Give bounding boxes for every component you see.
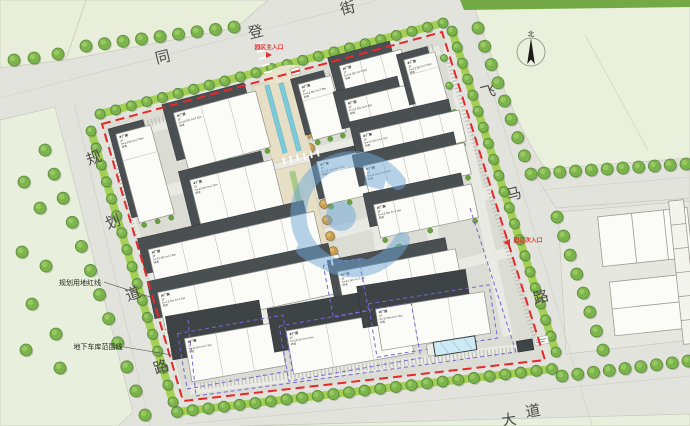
- tree-highlight: [268, 65, 273, 70]
- tree-highlight: [88, 128, 93, 133]
- tree-highlight: [59, 194, 64, 199]
- tree-highlight: [345, 388, 350, 393]
- tree-highlight: [377, 36, 382, 41]
- tree-highlight: [637, 362, 642, 367]
- tree-highlight: [634, 163, 639, 168]
- tree-highlight: [652, 361, 657, 366]
- tree-highlight: [553, 213, 558, 218]
- tree-highlight: [174, 30, 179, 35]
- tree-highlight: [329, 390, 334, 395]
- tree-highlight: [362, 40, 367, 45]
- tree-highlight: [100, 39, 105, 44]
- tree-highlight: [132, 387, 137, 392]
- site-plan-page: #厂房2Fh=12.0m h=7.0m研发#厂房2Fh=12.0m h=7.0m…: [0, 0, 690, 426]
- tree-highlight: [527, 268, 532, 273]
- tree-highlight: [514, 133, 519, 138]
- tree-highlight: [442, 56, 445, 59]
- tree-highlight: [137, 35, 142, 40]
- tree-highlight: [361, 387, 366, 392]
- tree-highlight: [28, 300, 33, 305]
- tree-highlight: [520, 152, 525, 157]
- tree-highlight: [485, 140, 490, 145]
- tree-highlight: [486, 372, 491, 377]
- tree-highlight: [118, 229, 123, 234]
- tree-highlight: [480, 42, 485, 47]
- tree-highlight: [299, 57, 304, 62]
- tree-highlight: [599, 346, 604, 351]
- tree-highlight: [144, 314, 149, 319]
- tree-highlight: [237, 73, 242, 78]
- tree-highlight: [108, 195, 113, 200]
- tree-highlight: [149, 331, 154, 336]
- tree-highlight: [190, 86, 195, 91]
- tree-highlight: [521, 252, 526, 257]
- tree-highlight: [77, 242, 82, 247]
- tree-highlight: [454, 44, 459, 49]
- tree-highlight: [174, 90, 179, 95]
- tree-highlight: [42, 262, 47, 267]
- tree-highlight: [392, 383, 397, 388]
- tree-highlight: [220, 403, 225, 408]
- tree-highlight: [532, 284, 537, 289]
- tree-highlight: [490, 156, 495, 161]
- tree-highlight: [423, 379, 428, 384]
- tree-highlight: [97, 111, 102, 116]
- tree-highlight: [527, 170, 532, 175]
- tree-highlight: [447, 83, 450, 86]
- tree-highlight: [574, 370, 579, 375]
- tree-highlight: [439, 378, 444, 383]
- tree-highlight: [559, 232, 564, 237]
- tree-highlight: [579, 289, 584, 294]
- tree-highlight: [252, 69, 257, 74]
- tree-highlight: [128, 102, 133, 107]
- tree-highlight: [164, 382, 169, 387]
- tree-highlight: [619, 164, 624, 169]
- tree-highlight: [666, 161, 671, 166]
- tree-highlight: [566, 251, 571, 256]
- tree-highlight: [20, 178, 25, 183]
- tree-highlight: [668, 359, 673, 364]
- tree-highlight: [68, 218, 73, 223]
- tree-highlight: [143, 98, 148, 103]
- tree-highlight: [141, 411, 146, 416]
- tree-highlight: [52, 330, 57, 335]
- tree-highlight: [511, 220, 516, 225]
- tree-highlight: [159, 94, 164, 99]
- tree-highlight: [603, 165, 608, 170]
- tree-highlight: [154, 348, 159, 353]
- tree-highlight: [18, 248, 23, 253]
- tree-highlight: [346, 44, 351, 49]
- tree-highlight: [621, 364, 626, 369]
- tree-highlight: [327, 233, 331, 237]
- tree-highlight: [605, 366, 610, 371]
- tree-highlight: [56, 364, 61, 369]
- tree-highlight: [41, 146, 46, 151]
- tree-highlight: [82, 42, 87, 47]
- tree-highlight: [36, 204, 41, 209]
- tree-highlight: [95, 290, 100, 295]
- tree-highlight: [542, 316, 547, 321]
- tree-highlight: [517, 369, 522, 374]
- tree-highlight: [459, 60, 464, 65]
- tree-highlight: [558, 372, 563, 377]
- tree-highlight: [129, 263, 134, 268]
- tree-highlight: [533, 367, 538, 372]
- tree-highlight: [587, 166, 592, 171]
- tree-highlight: [475, 108, 480, 113]
- tree-highlight: [684, 357, 689, 362]
- tree-highlight: [236, 401, 241, 406]
- tree-highlight: [682, 160, 687, 165]
- tree-highlight: [540, 169, 545, 174]
- tree-highlight: [586, 308, 591, 313]
- tree-highlight: [330, 48, 335, 53]
- tree-highlight: [314, 392, 319, 397]
- tree-highlight: [330, 248, 334, 252]
- tree-highlight: [50, 170, 55, 175]
- tree-highlight: [500, 97, 505, 102]
- tree-highlight: [480, 124, 485, 129]
- tree-highlight: [408, 381, 413, 386]
- tree-highlight: [103, 178, 108, 183]
- tree-highlight: [424, 24, 429, 29]
- tree-highlight: [206, 82, 211, 87]
- tree-highlight: [650, 162, 655, 167]
- tree-highlight: [10, 56, 15, 61]
- tree-highlight: [470, 374, 475, 379]
- tree-highlight: [495, 172, 500, 177]
- tree-highlight: [54, 50, 59, 55]
- tree-highlight: [86, 266, 91, 271]
- tree-highlight: [119, 37, 124, 42]
- tree-highlight: [123, 363, 128, 368]
- tree-highlight: [408, 28, 413, 33]
- tree-highlight: [284, 61, 289, 65]
- secondary-entrance-label: 园区次入口: [514, 236, 543, 244]
- tree-highlight: [211, 25, 216, 30]
- tree-highlight: [507, 115, 512, 120]
- tree-highlight: [393, 32, 398, 37]
- tree-highlight: [298, 394, 303, 399]
- tree-highlight: [170, 399, 175, 404]
- tree-highlight: [454, 376, 459, 381]
- north-label: 北: [528, 30, 535, 38]
- tree-highlight: [440, 20, 445, 25]
- tree-highlight: [573, 270, 578, 275]
- tree-highlight: [321, 201, 325, 205]
- tree-highlight: [548, 365, 553, 370]
- tree-highlight: [251, 399, 256, 404]
- site-plan-map: #厂房2Fh=12.0m h=7.0m研发#厂房2Fh=12.0m h=7.0m…: [0, 0, 690, 426]
- tree-highlight: [449, 28, 454, 33]
- tree-highlight: [104, 314, 109, 319]
- tree-highlight: [123, 246, 128, 251]
- tree-highlight: [589, 368, 594, 373]
- tree-highlight: [592, 327, 597, 332]
- tree-highlight: [173, 408, 178, 413]
- tree-highlight: [494, 79, 499, 84]
- tree-highlight: [506, 204, 511, 209]
- tree-highlight: [22, 346, 27, 351]
- tree-highlight: [571, 167, 576, 172]
- garage-callout: 地下车库范围线: [74, 342, 123, 351]
- tree-highlight: [487, 60, 492, 65]
- street-bottom-char-2: 道: [524, 401, 542, 421]
- tree-highlight: [156, 32, 161, 37]
- tree-highlight: [267, 397, 272, 402]
- tree-highlight: [230, 23, 235, 28]
- tree-highlight: [204, 405, 209, 410]
- tree-highlight: [464, 76, 469, 81]
- tree-highlight: [189, 406, 194, 411]
- tree-highlight: [501, 371, 506, 376]
- main-entrance-label: 园区主入口: [255, 43, 284, 51]
- tree-highlight: [469, 92, 474, 97]
- tree-highlight: [376, 385, 381, 390]
- red-line-callout: 规划用地红线: [59, 278, 101, 287]
- tree-highlight: [553, 349, 558, 354]
- tree-highlight: [221, 77, 226, 82]
- tree-highlight: [315, 53, 320, 58]
- tree-highlight: [30, 54, 35, 59]
- tree-highlight: [193, 28, 198, 33]
- tree-highlight: [112, 106, 117, 111]
- tree-highlight: [556, 168, 561, 173]
- tree-highlight: [283, 396, 288, 401]
- street-bottom-char-1: 大: [500, 410, 518, 426]
- tree-highlight: [474, 24, 479, 29]
